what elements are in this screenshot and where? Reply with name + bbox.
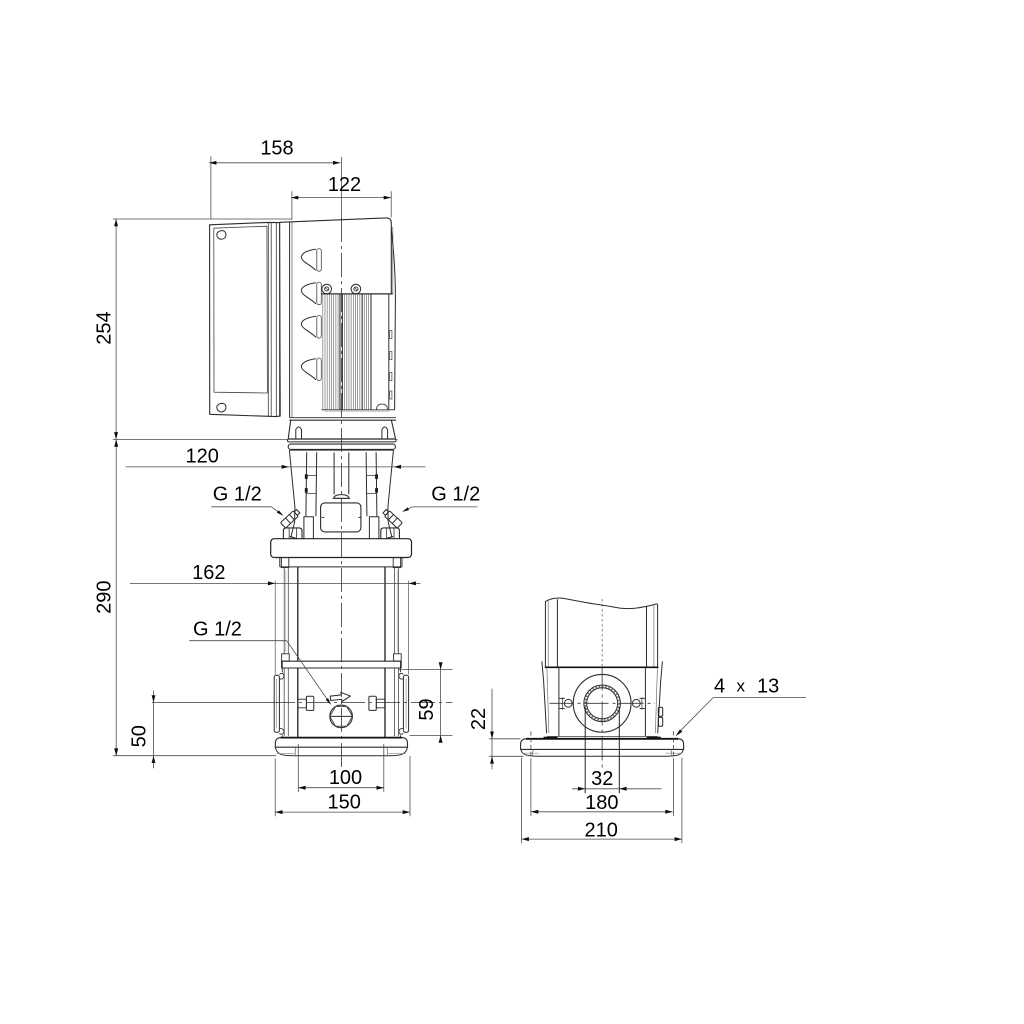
svg-text:13: 13 (757, 675, 779, 697)
svg-text:x: x (737, 677, 746, 696)
svg-text:22: 22 (468, 708, 490, 730)
svg-text:100: 100 (329, 767, 362, 789)
svg-text:4: 4 (714, 675, 725, 697)
svg-text:158: 158 (260, 138, 293, 160)
svg-text:150: 150 (328, 792, 361, 814)
svg-text:59: 59 (416, 698, 438, 720)
svg-text:122: 122 (328, 174, 361, 196)
svg-text:180: 180 (585, 792, 618, 814)
svg-text:G 1/2: G 1/2 (193, 619, 242, 641)
svg-text:162: 162 (192, 562, 225, 584)
svg-text:G 1/2: G 1/2 (213, 483, 262, 505)
svg-text:32: 32 (591, 768, 613, 790)
svg-text:G 1/2: G 1/2 (431, 483, 480, 505)
svg-text:210: 210 (585, 820, 618, 842)
svg-text:290: 290 (94, 581, 116, 614)
svg-text:120: 120 (186, 446, 219, 468)
svg-text:254: 254 (94, 311, 116, 344)
svg-text:50: 50 (128, 725, 150, 747)
